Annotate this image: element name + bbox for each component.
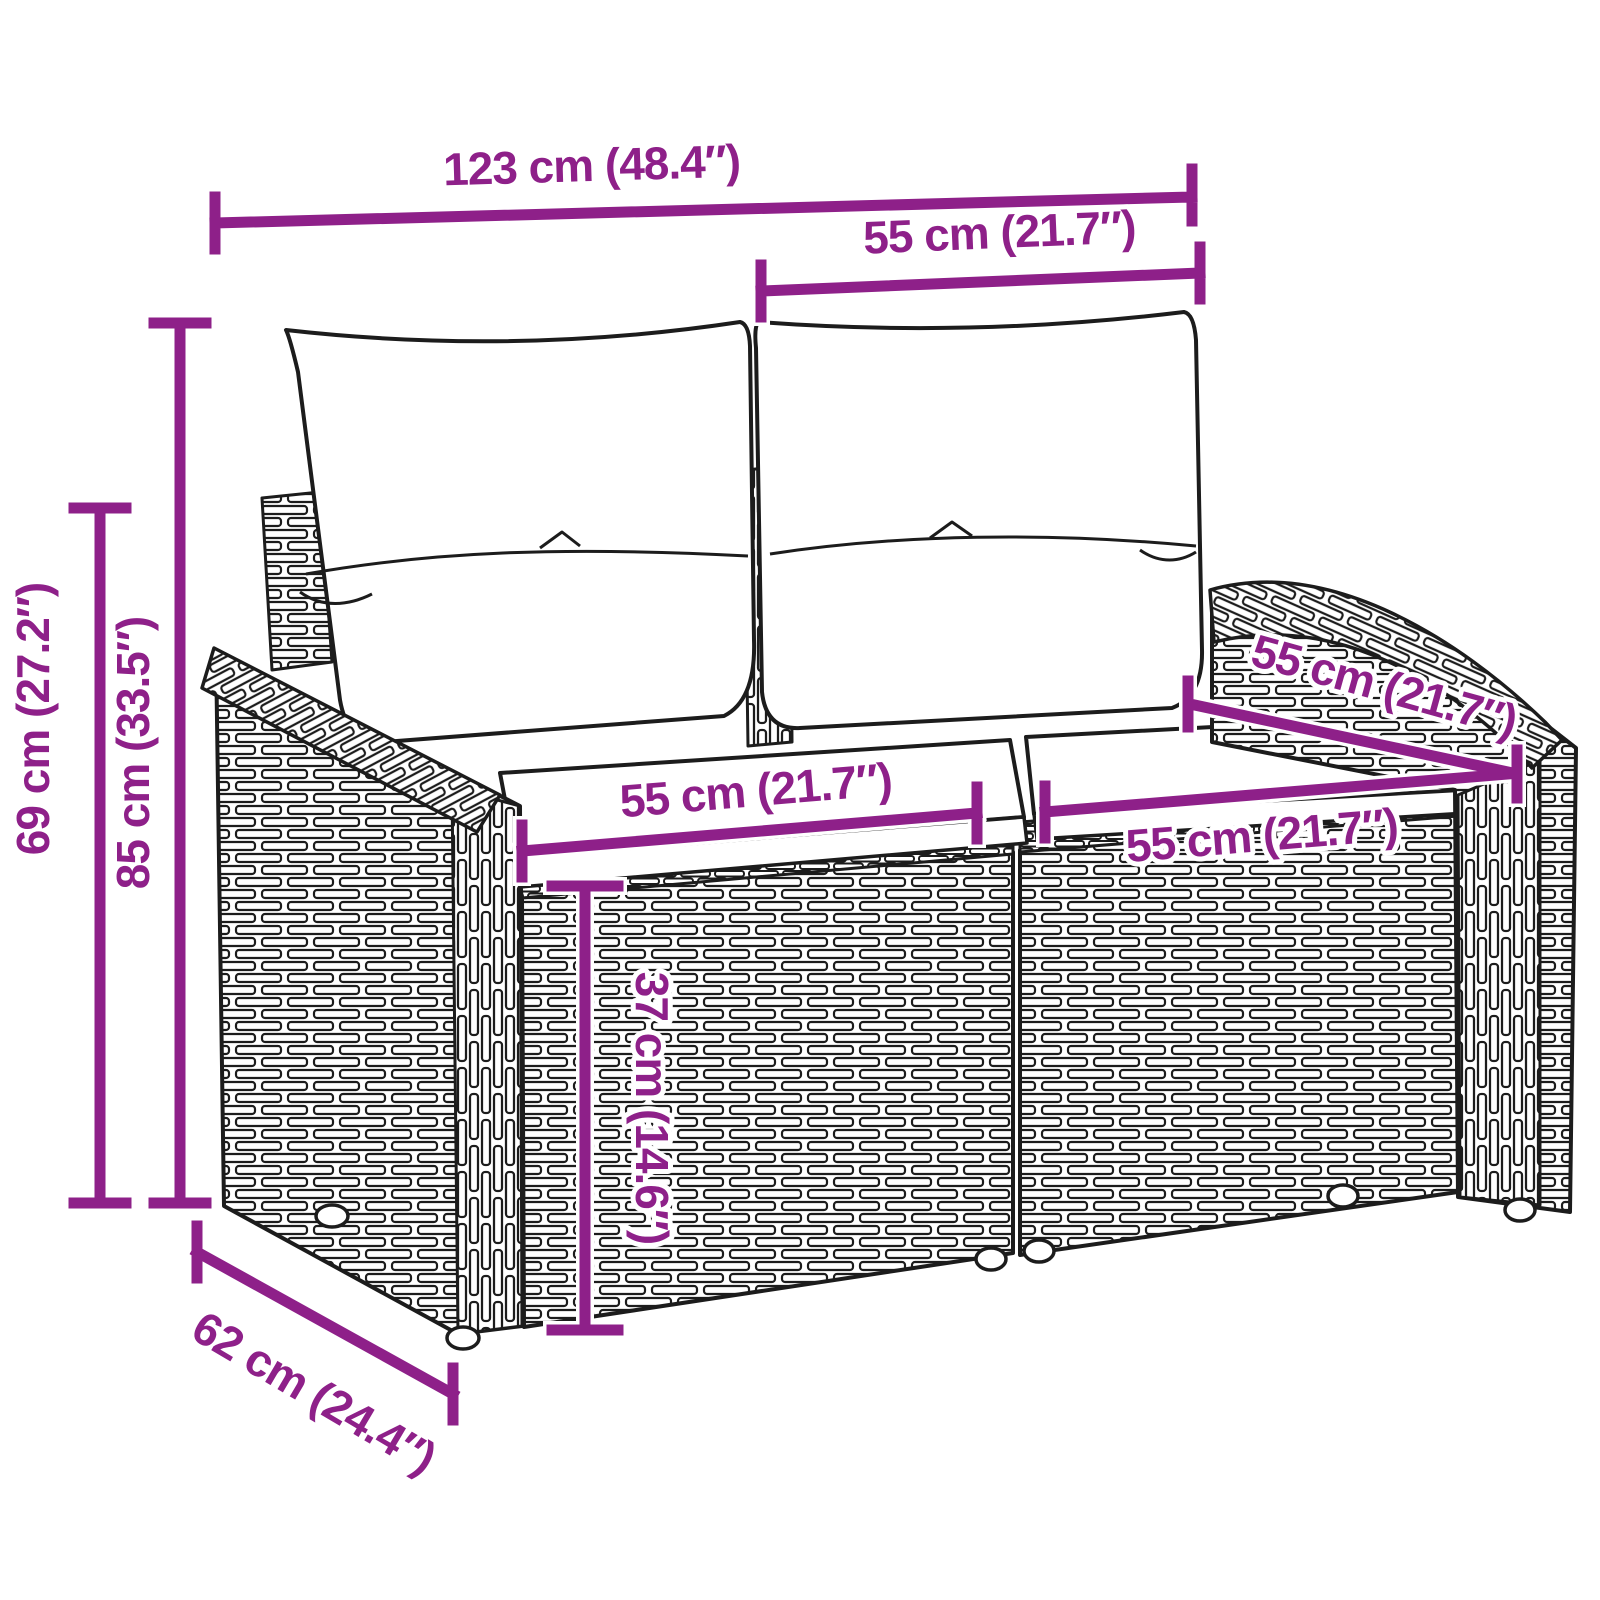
right-armrest-corner-post bbox=[1458, 760, 1540, 1205]
label-overall-width: 123 cm (48.4″) bbox=[442, 135, 740, 196]
left-armrest bbox=[202, 648, 522, 1334]
dim-line-total-height bbox=[154, 323, 206, 1203]
label-back-height: 69 cm (27.2″) bbox=[7, 583, 59, 855]
body-front-left bbox=[522, 852, 1013, 1327]
label-back-cushion: 55 cm (21.7″) bbox=[862, 200, 1136, 263]
sofa-dimension-diagram: 123 cm (48.4″) 55 cm (21.7″) 85 cm (33.5… bbox=[0, 0, 1600, 1600]
label-seat-height: 37 cm (14.6″) bbox=[626, 972, 678, 1244]
body-front-right bbox=[1020, 810, 1458, 1255]
label-depth: 62 cm (24.4″) bbox=[184, 1301, 445, 1484]
left-armrest-corner-post bbox=[452, 788, 522, 1334]
diagram-canvas: 123 cm (48.4″) 55 cm (21.7″) 85 cm (33.5… bbox=[0, 0, 1600, 1600]
right-back-cushion bbox=[755, 312, 1202, 728]
label-total-height: 85 cm (33.5″) bbox=[107, 617, 159, 889]
left-back-cushion bbox=[286, 322, 754, 742]
